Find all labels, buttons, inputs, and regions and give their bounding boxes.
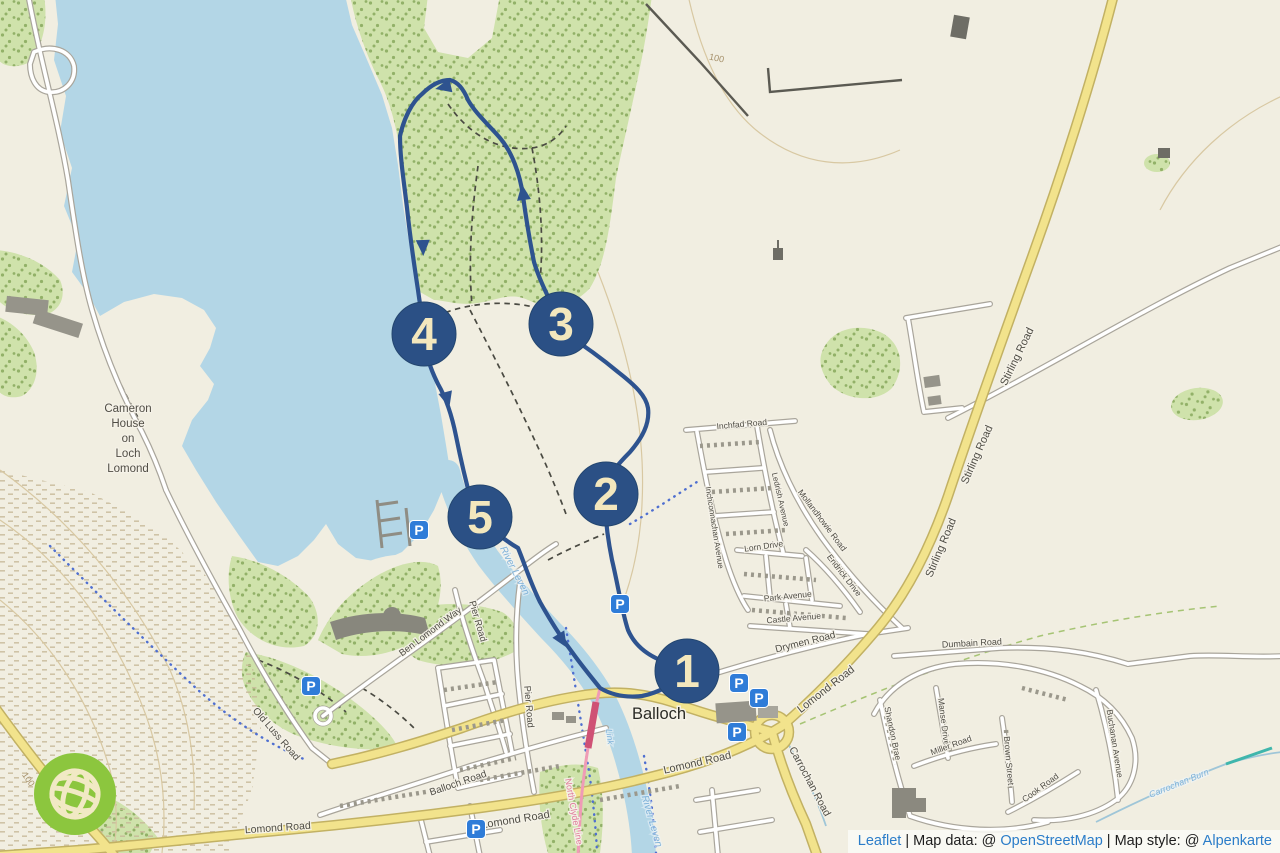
route-marker-number: 3 [548,298,574,350]
alpenkarte-logo-icon [34,753,116,835]
cameron-house-line: Lomond [107,463,149,475]
route-marker-number: 5 [467,491,493,543]
parking-icon: P [302,677,321,696]
parking-letter: P [306,678,315,694]
parking-letter: P [471,821,480,837]
parking-letter: P [615,596,624,612]
cameron-house-line: Loch [116,448,141,460]
openstreetmap-link[interactable]: OpenStreetMap [1000,833,1102,849]
attribution-bar: Leaflet | Map data: @ OpenStreetMap | Ma… [848,830,1280,853]
route-marker-3[interactable]: 3 [529,292,593,356]
parking-icon: P [611,595,630,614]
map-canvas[interactable]: BallochStirling RoadStirling RoadStirlin… [0,0,1280,853]
route-marker-5[interactable]: 5 [448,485,512,549]
attribution-text: | Map style: @ [1103,833,1203,849]
route-marker-number: 4 [411,308,437,360]
route-marker-number: 1 [674,645,700,697]
parking-icon: P [728,723,747,742]
parking-icon: P [467,820,486,839]
attribution-text: | Map data: @ [901,833,1000,849]
route-marker-2[interactable]: 2 [574,462,638,526]
parking-icon: P [410,521,429,540]
parking-icon: P [750,689,769,708]
cameron-house-line: House [111,418,144,430]
cameron-house-line: Cameron [104,403,151,415]
parking-letter: P [414,522,423,538]
round-building [383,607,401,625]
parking-letter: P [754,690,763,706]
parking-letter: P [734,675,743,691]
balloch-town-label: Balloch [632,705,686,723]
alpenkarte-link[interactable]: Alpenkarte [1203,833,1272,849]
leaflet-map[interactable]: BallochStirling RoadStirling RoadStirlin… [0,0,1280,853]
parking-icon: P [730,674,749,693]
leaflet-link[interactable]: Leaflet [858,833,902,849]
route-marker-number: 2 [593,468,619,520]
route-marker-4[interactable]: 4 [392,302,456,366]
link-path-label: Link [604,728,616,745]
parking-letter: P [732,724,741,740]
cameron-house-line: on [122,433,135,445]
route-marker-1[interactable]: 1 [655,639,719,703]
